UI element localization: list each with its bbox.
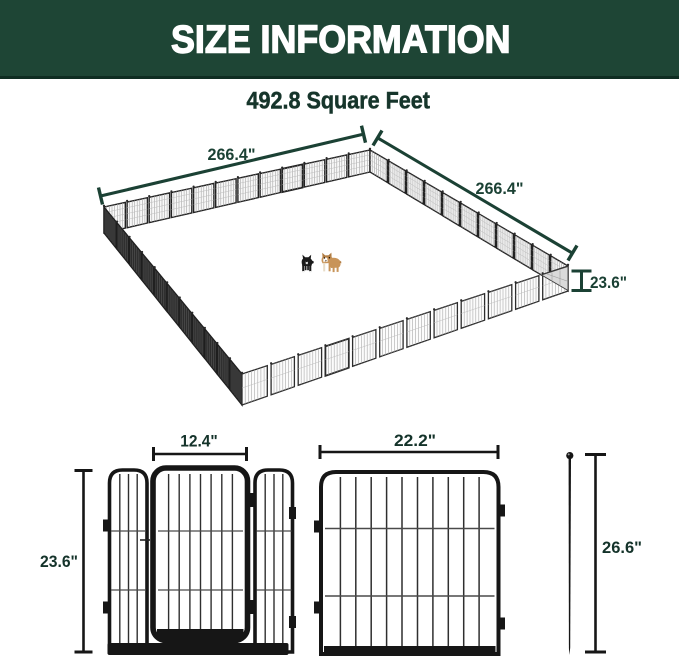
svg-text:23.6": 23.6" — [590, 273, 627, 292]
svg-text:22.2": 22.2" — [394, 431, 436, 450]
svg-text:492.8 Square Feet: 492.8 Square Feet — [247, 87, 431, 114]
svg-text:266.4": 266.4" — [208, 145, 256, 164]
svg-text:SIZE INFORMATION: SIZE INFORMATION — [171, 19, 511, 62]
svg-text:23.6": 23.6" — [40, 552, 78, 571]
svg-text:266.4": 266.4" — [476, 179, 524, 198]
svg-text:26.6": 26.6" — [602, 538, 642, 557]
svg-text:12.4": 12.4" — [180, 432, 218, 451]
